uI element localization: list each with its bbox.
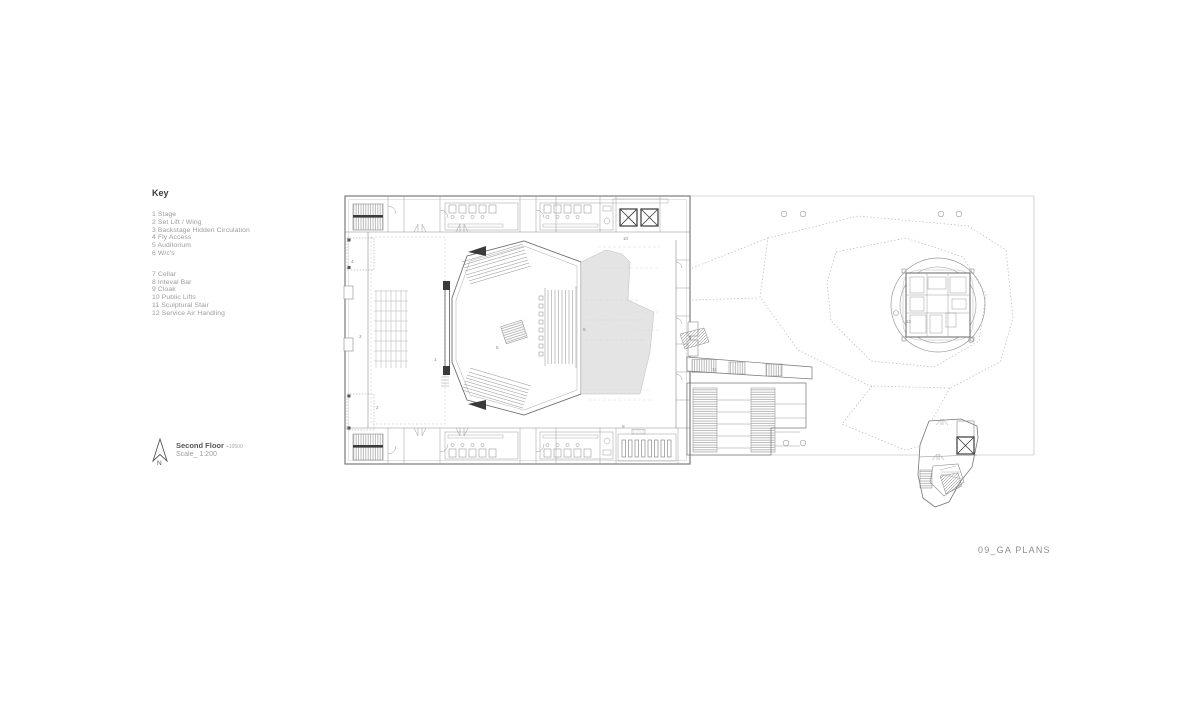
floor-plan-drawing: 1 2 3 4 5 8 9 10 11 12 — [0, 0, 1200, 706]
wc-group-bottom-2 — [540, 432, 613, 459]
label-service-air: 12 — [906, 319, 912, 324]
service-core — [891, 258, 985, 352]
top-band-rooms — [353, 196, 668, 232]
drawing-sheet: Key 1 Stage 2 Set Lift / Wing 3 Backstag… — [0, 0, 1200, 706]
auditorium — [452, 241, 581, 415]
proscenium — [441, 281, 450, 386]
fly-grid — [374, 290, 408, 368]
fly-access-room-bottom — [347, 394, 374, 430]
label-interval-bar: 8 — [583, 327, 586, 332]
interval-bar-area — [581, 250, 654, 394]
fly-access-room-top — [347, 238, 374, 270]
label-auditorium: 5 — [496, 345, 499, 350]
sculptural-stair — [680, 328, 812, 455]
label-stage: 1 — [434, 357, 437, 362]
label-sculptural-stair: 11 — [712, 367, 717, 372]
wc-group-bottom-1 — [445, 432, 518, 459]
label-backstage-circulation: 3 — [359, 334, 362, 339]
label-set-lift: 2 — [376, 405, 379, 410]
roof-plate — [680, 196, 1034, 507]
bottom-band-rooms — [353, 428, 678, 464]
wc-group-top-2 — [540, 203, 613, 230]
label-fly-access: 4 — [351, 259, 354, 264]
cloak-room — [603, 430, 676, 462]
stair-pavilion — [918, 419, 978, 507]
label-public-lifts: 10 — [623, 236, 629, 241]
theatre-block — [344, 196, 698, 464]
wc-group-top-1 — [445, 203, 518, 230]
label-cloak: 9 — [622, 424, 625, 429]
